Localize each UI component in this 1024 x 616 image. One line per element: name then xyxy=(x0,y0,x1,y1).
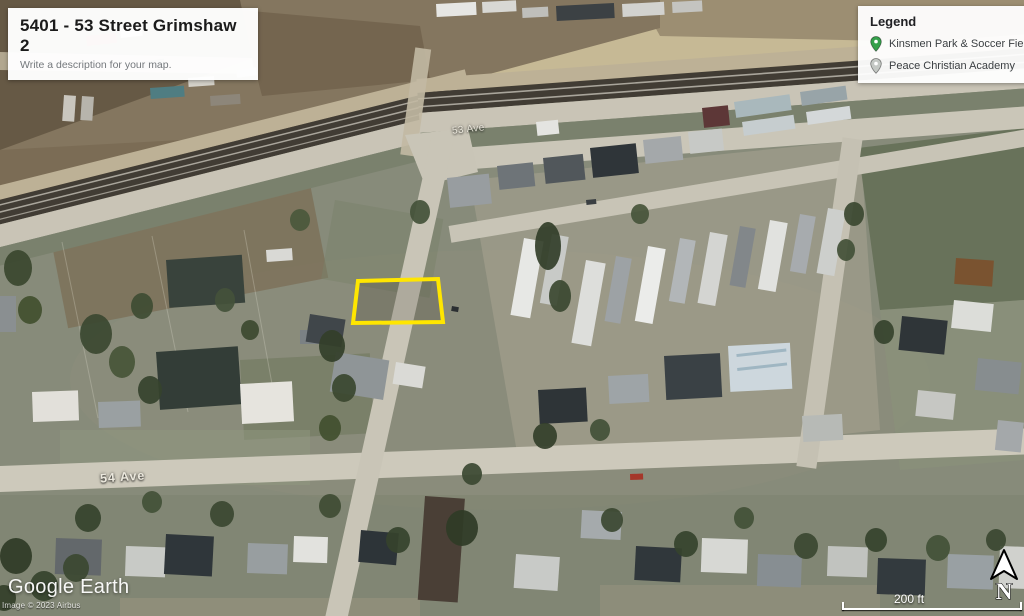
legend-item-peace-christian-academy[interactable]: Peace Christian Academy xyxy=(870,58,1024,74)
google-earth-view: 53 Ave 54 Ave 5401 - 53 Street Grimshaw … xyxy=(0,0,1024,616)
map-pin-icon xyxy=(870,58,882,74)
map-canvas[interactable] xyxy=(0,0,1024,616)
map-description-placeholder[interactable]: Write a description for your map. xyxy=(20,59,246,71)
legend-title: Legend xyxy=(870,14,1024,29)
legend-item-label: Kinsmen Park & Soccer Field xyxy=(889,38,1024,50)
scale-line xyxy=(842,608,1022,610)
imagery-credit: Image © 2023 Airbus xyxy=(2,601,81,610)
legend-item-kinsmen-park[interactable]: Kinsmen Park & Soccer Field xyxy=(870,36,1024,52)
north-arrow-icon xyxy=(991,550,1017,579)
google-earth-watermark: Google Earth xyxy=(8,576,129,599)
legend-card: Legend Kinsmen Park & Soccer Field Peace… xyxy=(858,6,1024,83)
north-arrow[interactable]: N xyxy=(986,548,1022,602)
map-pin-icon xyxy=(870,36,882,52)
map-title: 5401 - 53 Street Grimshaw 2 xyxy=(20,16,246,56)
legend-item-label: Peace Christian Academy xyxy=(889,60,1015,72)
scale-label: 200 ft xyxy=(894,592,924,606)
map-title-card[interactable]: 5401 - 53 Street Grimshaw 2 Write a desc… xyxy=(8,8,258,80)
parcel-highlight[interactable] xyxy=(353,279,443,323)
compass-n-label: N xyxy=(996,579,1013,602)
